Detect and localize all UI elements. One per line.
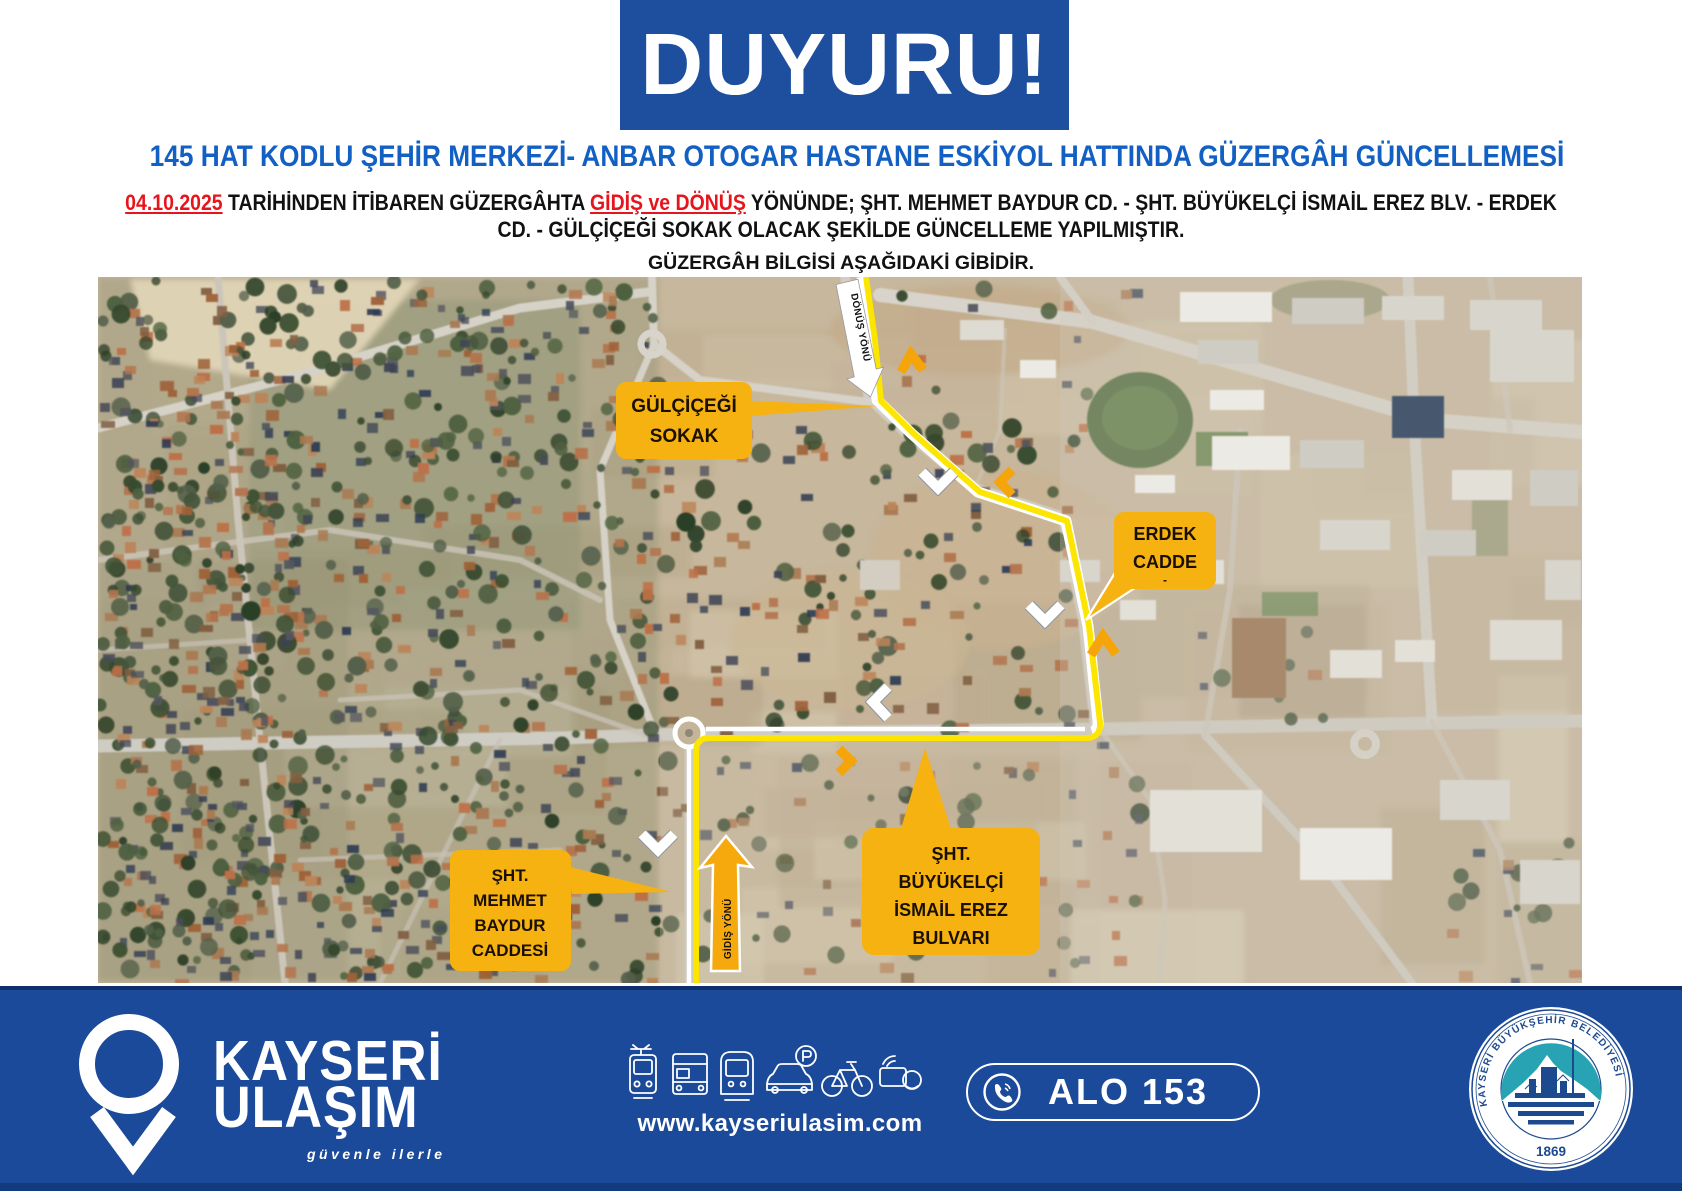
svg-text:BAYDUR: BAYDUR	[474, 916, 545, 935]
svg-text:ERDEK: ERDEK	[1133, 524, 1196, 544]
svg-text:MEHMET: MEHMET	[473, 891, 547, 910]
svg-text:ŞHT.: ŞHT.	[492, 866, 529, 885]
svg-text:GİDİŞ YÖNÜ: GİDİŞ YÖNÜ	[723, 898, 734, 959]
svg-text:GÜLÇİÇEĞİ: GÜLÇİÇEĞİ	[631, 395, 737, 417]
svg-text:İSMAİL EREZ: İSMAİL EREZ	[894, 900, 1008, 920]
svg-text:CADDE: CADDE	[1133, 552, 1197, 572]
svg-text:SOKAK: SOKAK	[650, 426, 719, 447]
svg-text:BÜYÜKELÇİ: BÜYÜKELÇİ	[898, 872, 1003, 892]
svg-text:-: -	[1163, 573, 1167, 587]
svg-text:1869: 1869	[1536, 1144, 1566, 1159]
svg-text:BULVARI: BULVARI	[912, 928, 989, 948]
svg-text:ŞHT.: ŞHT.	[931, 844, 970, 864]
svg-text:CADDESİ: CADDESİ	[472, 941, 549, 960]
